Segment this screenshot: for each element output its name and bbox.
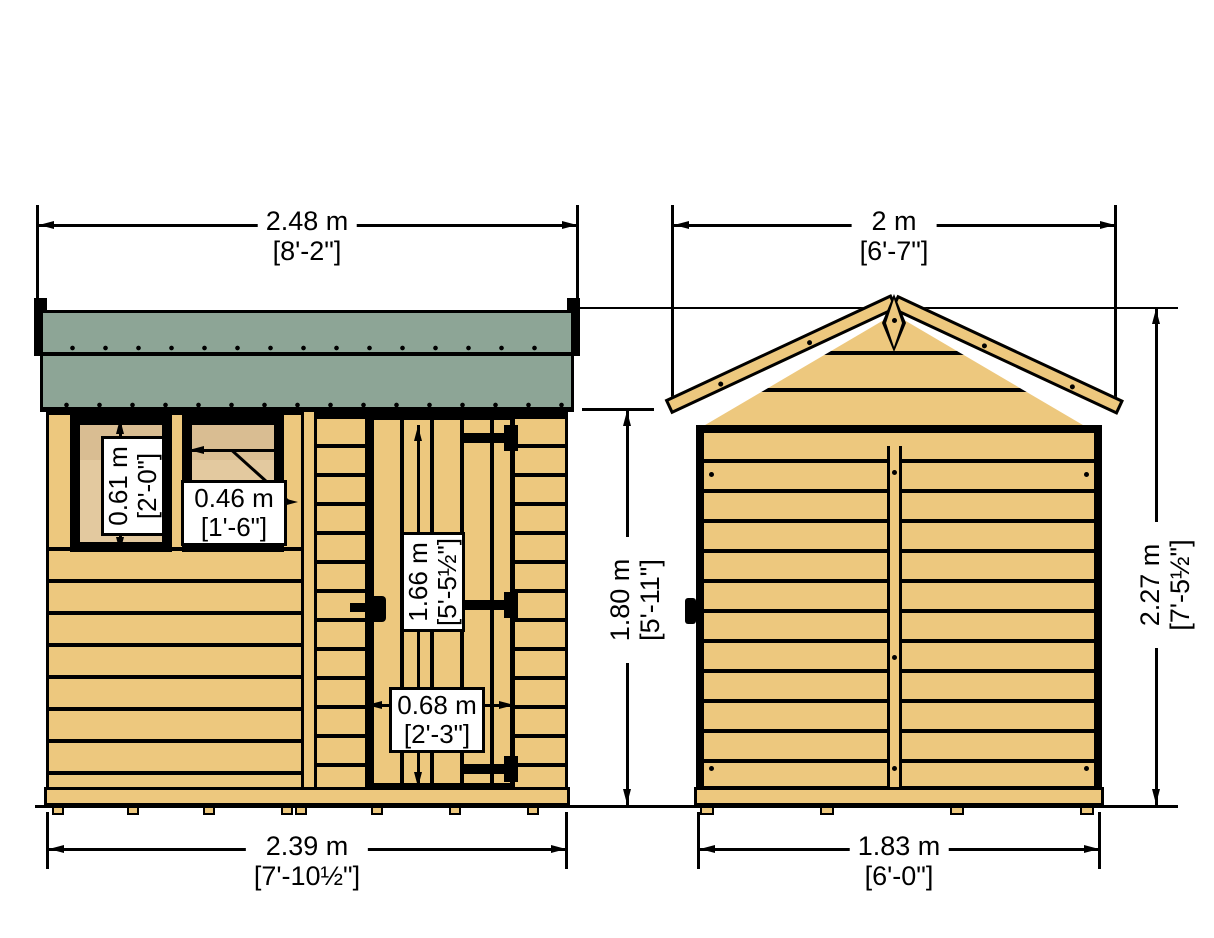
shed-foot	[527, 806, 539, 815]
dimension-label: 1.80 m [5'-11"]	[603, 537, 667, 663]
side-centre-batten	[887, 446, 902, 790]
extension-line	[565, 812, 568, 869]
extension-line	[36, 205, 39, 303]
arrowhead	[116, 537, 124, 552]
arrowhead	[674, 221, 689, 229]
dim-imperial: [6'-0"]	[865, 861, 934, 891]
batten-nail	[892, 470, 897, 475]
arrowhead	[414, 772, 422, 787]
shed-foot	[820, 806, 834, 815]
corner-nail	[1084, 766, 1089, 771]
front-base-rail	[44, 787, 570, 806]
dim-metric: 0.61 m	[104, 446, 133, 526]
arrowhead	[39, 221, 54, 229]
corner-nail	[709, 766, 714, 771]
front-corner-batten	[301, 412, 317, 790]
bargeboard-nail	[981, 343, 988, 350]
arrowhead	[1100, 221, 1115, 229]
arrowhead	[367, 701, 382, 709]
arrowhead	[189, 446, 204, 454]
arrowhead	[1152, 789, 1160, 804]
dimension-label: 2.27 m [7'-5½"]	[1133, 522, 1197, 648]
door-latch-knob	[368, 596, 386, 622]
dimension-label-box: 0.61 m [2'-0"]	[101, 436, 165, 536]
extension-line	[671, 205, 674, 403]
door-hinge-top-plate	[504, 425, 518, 451]
finial-nail	[892, 318, 897, 323]
dim-metric: 2 m	[871, 206, 916, 236]
dim-imperial: [7'-10½"]	[254, 861, 360, 891]
bargeboard-nail	[806, 339, 813, 346]
dim-metric: 0.46 m	[194, 484, 274, 513]
shed-foot	[52, 806, 64, 815]
shed-foot	[950, 806, 964, 815]
arrowhead	[700, 845, 715, 853]
dim-imperial: [5'-5½"]	[433, 538, 462, 626]
dimension-label: 2.39 m [7'-10½"]	[246, 831, 368, 891]
door-hinge-middle-plate	[504, 592, 518, 618]
arrowhead	[562, 221, 577, 229]
arrowhead	[499, 701, 514, 709]
dim-metric: 1.66 m	[404, 542, 433, 622]
dim-metric: 0.68 m	[397, 691, 477, 720]
front-wall-strip-left-of-door	[317, 415, 365, 787]
dim-metric: 2.48 m	[266, 206, 349, 236]
extension-line	[1114, 205, 1117, 403]
dim-metric: 2.27 m	[1135, 544, 1165, 627]
front-wall-cladding-left	[49, 547, 302, 787]
dimension-label: 2 m [6'-7"]	[852, 206, 937, 266]
bargeboard-nail	[1069, 384, 1076, 391]
dimension-label: 2.48 m [8'-2"]	[258, 206, 357, 266]
arrowhead	[116, 419, 124, 434]
shed-foot	[371, 806, 383, 815]
arrowhead	[623, 789, 631, 804]
shed-foot	[203, 806, 215, 815]
front-wall-strip-right-of-door	[515, 415, 565, 787]
dim-metric: 1.80 m	[605, 559, 635, 642]
arrowhead	[1084, 845, 1099, 853]
dim-metric: 1.83 m	[858, 831, 941, 861]
extension-line	[46, 812, 49, 869]
dimension-label: 1.83 m [6'-0"]	[850, 831, 949, 891]
corner-nail	[1084, 472, 1089, 477]
bargeboard-nail	[717, 381, 724, 388]
arrowhead	[1152, 309, 1160, 324]
corner-nail	[709, 472, 714, 477]
front-roof-felt	[40, 310, 574, 412]
shed-foot	[449, 806, 461, 815]
extension-line	[1098, 812, 1101, 869]
dimension-label-box: 0.68 m [2'-3"]	[389, 687, 485, 753]
arrowhead	[623, 411, 631, 426]
dim-imperial: [1'-6"]	[201, 513, 267, 542]
extension-line	[576, 205, 579, 303]
side-hinge-end	[685, 598, 696, 624]
arrowhead	[414, 426, 422, 441]
shed-foot	[1080, 806, 1094, 815]
dim-imperial: [5'-11"]	[635, 559, 665, 641]
dim-metric: 2.39 m	[266, 831, 349, 861]
front-roof-nail-row-eaves	[50, 401, 565, 409]
front-roof-nail-row-upper	[56, 344, 560, 352]
side-base-rail	[694, 787, 1104, 806]
arrowhead	[551, 845, 566, 853]
technical-drawing: 2.48 m [8'-2"] 2 m [6'-7"] 1.80 m [5'-11…	[0, 0, 1214, 938]
dimension-label-box: 1.66 m [5'-5½"]	[401, 532, 465, 632]
batten-nail	[892, 655, 897, 660]
dim-imperial: [2'-0"]	[133, 453, 162, 519]
dim-imperial: [6'-7"]	[860, 236, 929, 266]
dimension-label-box: 0.46 m [1'-6"]	[181, 480, 287, 546]
door-hinge-bottom-plate	[504, 756, 518, 782]
dim-imperial: [2'-3"]	[404, 720, 470, 749]
dim-imperial: [8'-2"]	[273, 236, 342, 266]
extension-line	[582, 408, 654, 411]
batten-nail	[892, 766, 897, 771]
dim-imperial: [7'-5½"]	[1165, 539, 1195, 630]
front-roof-felt-seam	[43, 352, 571, 356]
shed-foot	[295, 806, 307, 815]
shed-foot	[700, 806, 714, 815]
shed-foot	[127, 806, 139, 815]
arrowhead	[49, 845, 64, 853]
shed-foot	[281, 806, 293, 815]
extension-line	[697, 812, 700, 869]
